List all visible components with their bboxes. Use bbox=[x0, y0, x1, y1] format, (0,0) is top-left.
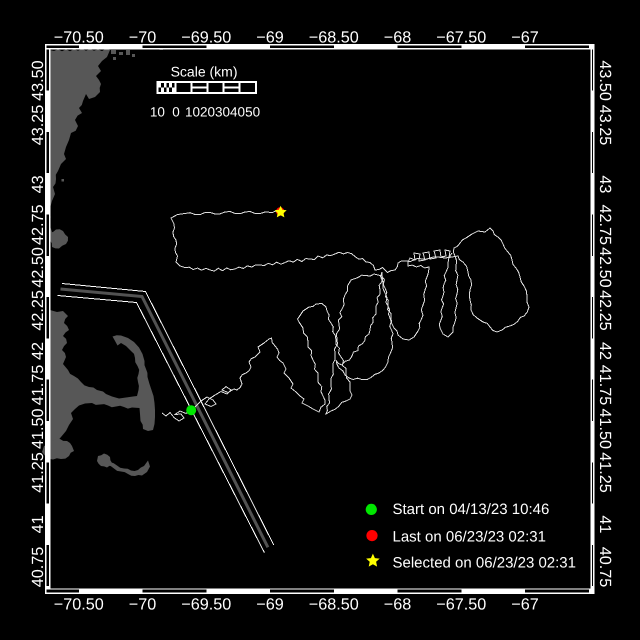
svg-text:Scale (km): Scale (km) bbox=[171, 64, 238, 80]
svg-text:42.75: 42.75 bbox=[596, 204, 614, 245]
svg-text:−69.50: −69.50 bbox=[181, 28, 231, 46]
svg-text:41.50: 41.50 bbox=[29, 408, 47, 449]
svg-text:42: 42 bbox=[29, 342, 47, 360]
svg-text:41: 41 bbox=[596, 515, 614, 533]
svg-text:Start on 04/13/23 10:46: Start on 04/13/23 10:46 bbox=[393, 501, 550, 518]
svg-text:41.75: 41.75 bbox=[29, 365, 47, 406]
svg-text:42.75: 42.75 bbox=[29, 204, 47, 245]
svg-text:−70: −70 bbox=[129, 595, 156, 613]
svg-text:41.25: 41.25 bbox=[596, 452, 614, 493]
svg-text:41.50: 41.50 bbox=[596, 408, 614, 449]
svg-text:−68.50: −68.50 bbox=[309, 595, 359, 613]
svg-text:41.75: 41.75 bbox=[596, 365, 614, 406]
svg-text:43.50: 43.50 bbox=[29, 60, 47, 101]
svg-text:Selected on 06/23/23 02:31: Selected on 06/23/23 02:31 bbox=[393, 555, 577, 572]
svg-text:−67.50: −67.50 bbox=[436, 28, 486, 46]
svg-text:−67: −67 bbox=[511, 595, 538, 613]
svg-text:41.25: 41.25 bbox=[29, 452, 47, 493]
svg-text:Last on 06/23/23 02:31: Last on 06/23/23 02:31 bbox=[393, 528, 546, 545]
svg-text:−67.50: −67.50 bbox=[436, 595, 486, 613]
svg-text:−68: −68 bbox=[384, 595, 411, 613]
svg-text:−68.50: −68.50 bbox=[309, 28, 359, 46]
svg-text:42.25: 42.25 bbox=[29, 290, 47, 331]
svg-text:43: 43 bbox=[596, 175, 614, 193]
svg-text:−69: −69 bbox=[256, 595, 283, 613]
svg-text:42.50: 42.50 bbox=[596, 247, 614, 288]
svg-text:−67: −67 bbox=[511, 28, 538, 46]
svg-text:0: 0 bbox=[172, 105, 180, 120]
svg-text:−70.50: −70.50 bbox=[54, 595, 104, 613]
svg-text:−70: −70 bbox=[129, 28, 156, 46]
svg-text:−69.50: −69.50 bbox=[181, 595, 231, 613]
svg-text:10: 10 bbox=[150, 105, 165, 120]
svg-text:40.75: 40.75 bbox=[596, 547, 614, 588]
svg-text:43.50: 43.50 bbox=[596, 60, 614, 101]
svg-text:41: 41 bbox=[29, 515, 47, 533]
svg-text:42.50: 42.50 bbox=[29, 247, 47, 288]
svg-text:43.25: 43.25 bbox=[29, 105, 47, 146]
svg-text:40.75: 40.75 bbox=[29, 547, 47, 588]
svg-text:43: 43 bbox=[29, 175, 47, 193]
svg-text:−69: −69 bbox=[256, 28, 283, 46]
svg-text:42: 42 bbox=[596, 342, 614, 360]
svg-text:43.25: 43.25 bbox=[596, 105, 614, 146]
svg-text:−70.50: −70.50 bbox=[54, 28, 104, 46]
svg-text:1020304050: 1020304050 bbox=[185, 105, 260, 120]
svg-text:−68: −68 bbox=[384, 28, 411, 46]
svg-text:42.25: 42.25 bbox=[596, 290, 614, 331]
